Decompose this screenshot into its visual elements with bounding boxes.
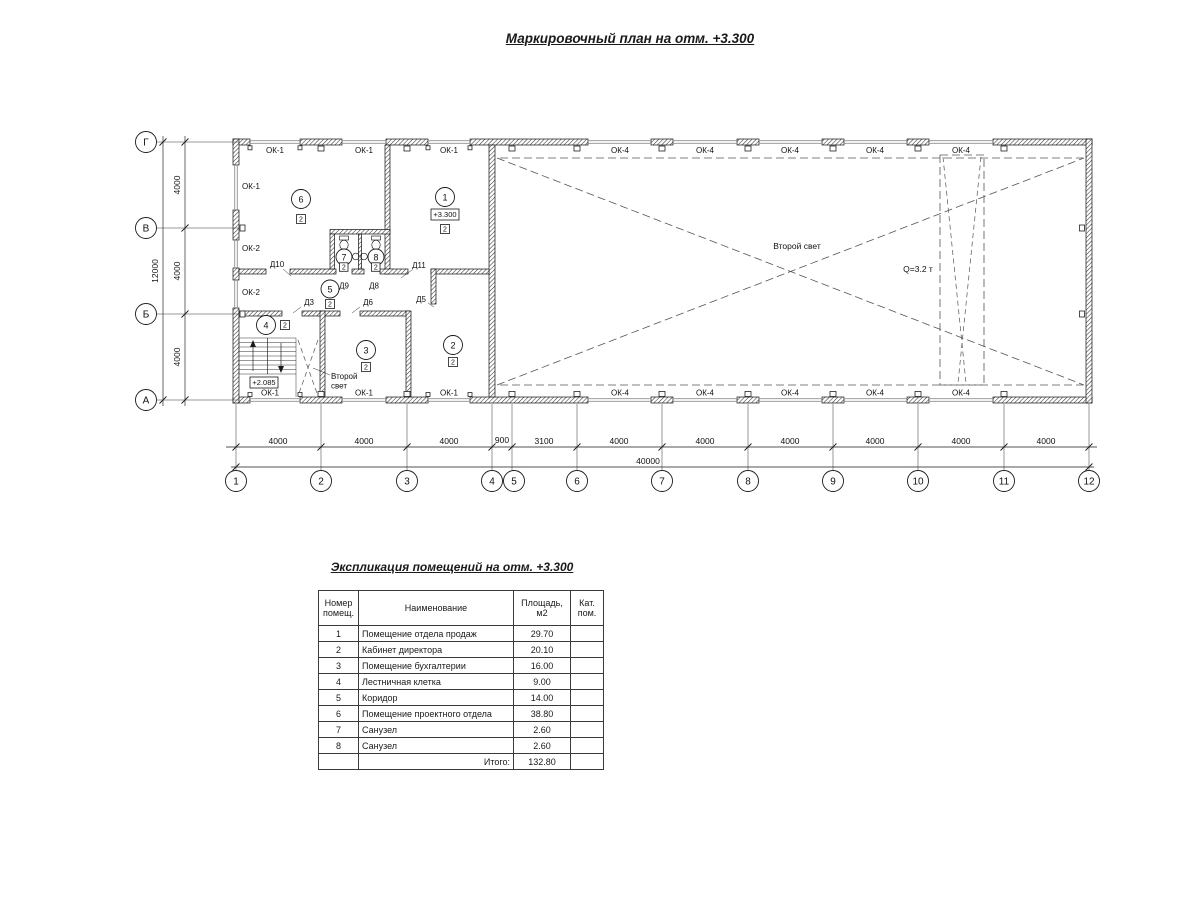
room-num: 2 [319,642,359,658]
room-category: 2 [328,302,332,309]
room-number: 4 [263,321,268,331]
room-num: 8 [319,738,359,754]
room-cat [571,690,604,706]
table-row: 2 Кабинет директора 20.10 [319,642,604,658]
window-label: ОК-4 [611,146,630,155]
crane-capacity-label: Q=3.2 т [903,264,933,274]
window-label: ОК-4 [611,389,630,398]
axis-bubble-11: 11 [999,477,1010,488]
dim-label: 4000 [866,436,885,446]
room-number: 1 [442,193,447,203]
room-area: 20.10 [514,642,571,658]
schedule-title: Экспликация помещений на отм. +3.300 [252,560,652,574]
dim-label: 4000 [781,436,800,446]
axis-bubble-g: Г [143,138,149,149]
room-area: 16.00 [514,658,571,674]
room-cat [571,706,604,722]
door-label-d3: Д3 [304,298,314,307]
schedule-header-name: Наименование [359,591,514,626]
dim-label: 4000 [355,436,374,446]
room-cat [571,642,604,658]
window-label: ОК-1 [355,146,374,155]
room-num: 7 [319,722,359,738]
room-name: Санузел [359,738,514,754]
room-num: 1 [319,626,359,642]
level-mark: +3.300 [433,210,456,219]
axis-bubble-3: 3 [404,477,410,488]
axis-bubble-7: 7 [659,477,665,488]
room-name: Лестничная клетка [359,674,514,690]
room-num: 3 [319,658,359,674]
schedule-header-area: Площадь, м2 [514,591,571,626]
table-row: 6 Помещение проектного отдела 38.80 [319,706,604,722]
axis-bubble-1: 1 [233,477,239,488]
axis-bubble-4: 4 [489,477,495,488]
room-schedule-table: Номер помещ. Наименование Площадь, м2 Ка… [318,590,604,770]
door-label-d11: Д11 [412,261,426,270]
schedule-header-number: Номер помещ. [319,591,359,626]
window-labels: ОК-1 ОК-1 ОК-1 ОК-4 ОК-4 ОК-4 ОК-4 ОК-4 … [242,146,971,398]
room-number: 3 [363,346,368,356]
door-label-d6: Д6 [363,298,373,307]
drawing-sheet: Маркировочный план на отм. +3.300 [0,0,1200,900]
table-row: 1 Помещение отдела продаж 29.70 [319,626,604,642]
table-row: 8 Санузел 2.60 [319,738,604,754]
second-light-small-label: Второй [331,372,357,381]
window-label: ОК-4 [952,146,971,155]
dim-total-label: 40000 [636,456,660,466]
axis-bubble-12: 12 [1083,477,1095,488]
axis-bubble-8: 8 [745,477,751,488]
room-cat [571,626,604,642]
axis-bubble-a: А [143,396,150,407]
table-row: 7 Санузел 2.60 [319,722,604,738]
dim-label: 4000 [172,347,182,366]
room-area: 2.60 [514,722,571,738]
level-mark: +2.085 [252,378,275,387]
room-category: 2 [451,360,455,367]
dim-label: 4000 [952,436,971,446]
room-name: Помещение бухгалтерии [359,658,514,674]
window-label: ОК-2 [242,288,261,297]
dim-label: 900 [495,435,509,445]
window-label: ОК-4 [781,146,800,155]
floor-plan: 4000 4000 4000 900 3100 4000 4000 4000 4… [0,0,1200,545]
axis-bubble-v: В [143,224,150,235]
axis-bubble-2: 2 [318,477,324,488]
dimension-lines: 4000 4000 4000 900 3100 4000 4000 4000 4… [150,136,1097,471]
window-label: ОК-1 [261,389,280,398]
room-cat [571,738,604,754]
room-number: 7 [341,253,346,263]
schedule-header-cat: Кат. пом. [571,591,604,626]
room-category: 2 [299,217,303,224]
room-area: 14.00 [514,690,571,706]
room-number: 6 [298,195,303,205]
dim-label: 4000 [172,175,182,194]
door-label-d8: Д8 [369,282,379,291]
window-label: ОК-4 [866,389,885,398]
window-label: ОК-1 [440,389,459,398]
second-light-small-label: свет [331,382,347,391]
dim-label: 4000 [1037,436,1056,446]
room-num: 5 [319,690,359,706]
dim-label: 4000 [610,436,629,446]
room-category: 2 [342,265,346,272]
axis-bubbles-bottom: 1 2 3 4 5 6 7 8 9 10 11 12 [226,471,1100,492]
window-label: ОК-4 [696,146,715,155]
dim-label: 4000 [440,436,459,446]
dim-total-label: 12000 [150,259,160,283]
total-empty [319,754,359,770]
window-label: ОК-1 [355,389,374,398]
room-cat [571,722,604,738]
room-name: Помещение отдела продаж [359,626,514,642]
schedule-title-text: Экспликация помещений на отм. +3.300 [331,560,574,574]
dim-label: 4000 [172,261,182,280]
total-empty [571,754,604,770]
window-label: ОК-4 [866,146,885,155]
table-row: 5 Коридор 14.00 [319,690,604,706]
room-number: 2 [450,341,455,351]
room-category: 2 [283,323,287,330]
room-area: 2.60 [514,738,571,754]
window-label: ОК-2 [242,244,261,253]
table-row: 3 Помещение бухгалтерии 16.00 [319,658,604,674]
table-row: 4 Лестничная клетка 9.00 [319,674,604,690]
room-cat [571,674,604,690]
room-number: 8 [373,253,378,263]
window-label: ОК-4 [696,389,715,398]
window-label: ОК-4 [952,389,971,398]
room-name: Коридор [359,690,514,706]
total-label: Итого: [359,754,514,770]
door-label-d9: Д9 [339,282,349,291]
room-area: 38.80 [514,706,571,722]
room-cat [571,658,604,674]
dim-label: 4000 [696,436,715,446]
axis-bubble-10: 10 [912,477,924,488]
room-num: 6 [319,706,359,722]
dim-label: 4000 [269,436,288,446]
room-num: 4 [319,674,359,690]
window-label: ОК-4 [781,389,800,398]
total-value: 132.80 [514,754,571,770]
door-label-d5: Д5 [416,295,426,304]
dim-label: 3100 [535,436,554,446]
room-area: 29.70 [514,626,571,642]
room-name: Кабинет директора [359,642,514,658]
door-labels: Д10 Д9 Д8 Д11 Д3 Д6 Д5 [270,260,434,313]
room-category: 2 [443,227,447,234]
window-label: ОК-1 [242,182,261,191]
room-category: 2 [364,365,368,372]
table-total-row: Итого: 132.80 [319,754,604,770]
door-label-d10: Д10 [270,260,285,269]
axis-bubble-9: 9 [830,477,836,488]
room-markers: 1 +3.300 2 2 2 3 2 4 2 5 2 6 2 7 2 8 2 +… [250,188,463,389]
room-name: Помещение проектного отдела [359,706,514,722]
window-symbols [235,141,993,402]
room-category: 2 [374,265,378,272]
hall-crane-zone [497,155,1084,385]
window-label: ОК-1 [266,146,285,155]
window-label: ОК-1 [440,146,459,155]
axis-bubble-5: 5 [511,477,517,488]
room-area: 9.00 [514,674,571,690]
second-light-label: Второй свет [773,241,821,251]
axis-bubble-b: Б [143,310,150,321]
room-number: 5 [327,285,332,295]
axis-bubble-6: 6 [574,477,580,488]
room-name: Санузел [359,722,514,738]
